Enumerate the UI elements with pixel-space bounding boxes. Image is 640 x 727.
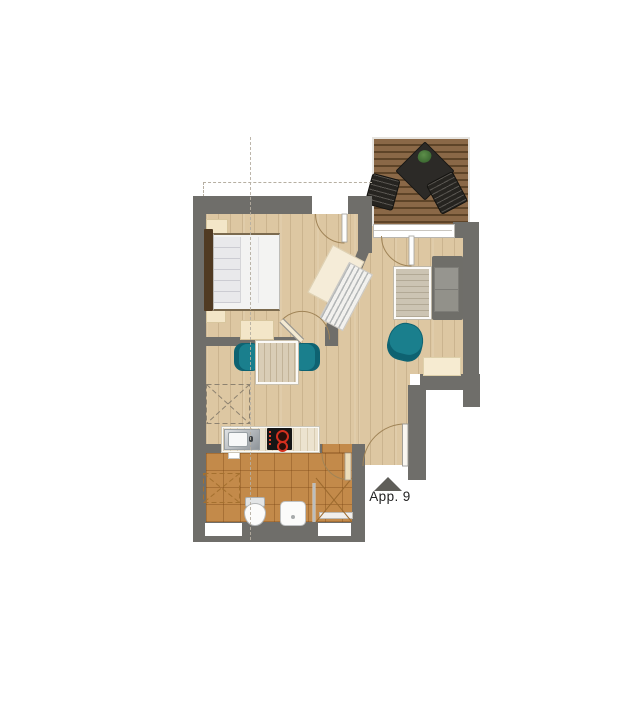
sofa: [432, 256, 463, 320]
wall-bathroom-right: [352, 444, 365, 532]
shower-drain: [319, 512, 353, 519]
bathroom-window-left: [205, 523, 242, 536]
section-center-line: [250, 137, 251, 540]
sofa-cushion-bottom: [434, 289, 459, 312]
floor-entry: [358, 374, 410, 466]
roof-outline-horizontal: [203, 182, 372, 183]
wall-entry-right: [408, 385, 426, 480]
sofa-cushion-top: [434, 267, 459, 290]
opening-hall-door: [312, 196, 348, 214]
wall-terrace-junction: [358, 196, 372, 253]
kitchen-sink: [224, 429, 260, 450]
wall-right: [463, 228, 479, 390]
drain-icon: [291, 515, 295, 519]
floor-plan: App. 9: [0, 0, 640, 727]
bed-headboard: [204, 229, 213, 311]
wall-right-lip: [463, 390, 480, 407]
double-bed: [213, 233, 280, 311]
sideboard-living: [423, 357, 461, 376]
apartment-label: App. 9: [359, 489, 421, 504]
bed-duvet-seam: [258, 237, 259, 303]
cooktop: [267, 428, 292, 450]
roof-outline-vertical: [203, 182, 204, 197]
dining-table: [256, 341, 298, 384]
dresser-bedroom: [240, 320, 274, 340]
washbasin: [280, 501, 306, 526]
cooktop-indicator-lights: [269, 431, 271, 447]
sink-basin: [228, 432, 248, 447]
coffee-table: [394, 267, 431, 319]
burner-small: [277, 441, 288, 452]
bed-pillows: [214, 237, 241, 303]
bathroom-window-right: [318, 523, 351, 536]
floor-bathroom-doorway: [322, 444, 352, 453]
wall-bedroom-jamb: [325, 327, 338, 346]
balcony-window-band: [373, 224, 455, 238]
wall-living-bottom: [420, 374, 480, 390]
wall-top-left: [193, 196, 312, 214]
window-midline: [374, 230, 452, 231]
